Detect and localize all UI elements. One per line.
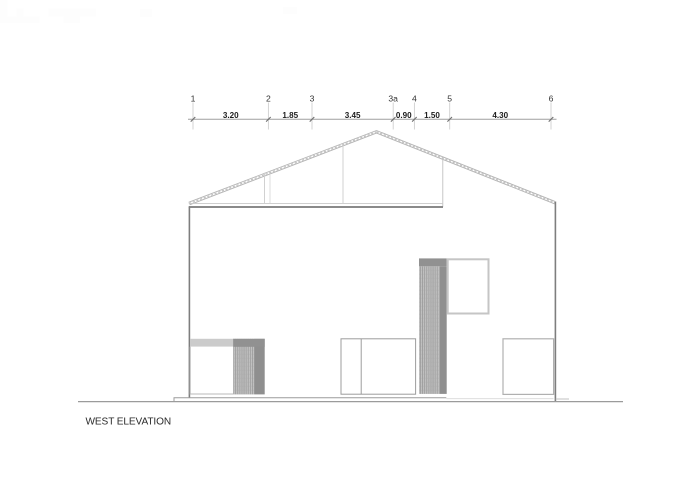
svg-text:3.45: 3.45: [345, 111, 361, 120]
svg-text:6: 6: [549, 93, 554, 103]
svg-text:WEST ELEVATION: WEST ELEVATION: [86, 417, 172, 428]
svg-text:3.20: 3.20: [223, 111, 239, 120]
svg-text:5: 5: [447, 93, 452, 103]
svg-text:0.90: 0.90: [396, 111, 412, 120]
svg-text:1.85: 1.85: [282, 111, 298, 120]
svg-text:2: 2: [266, 93, 271, 103]
svg-text:4: 4: [412, 93, 417, 103]
svg-text:1: 1: [191, 93, 196, 103]
svg-text:3a: 3a: [388, 93, 398, 103]
svg-text:3: 3: [310, 93, 315, 103]
svg-text:1.50: 1.50: [424, 111, 440, 120]
svg-text:4.30: 4.30: [492, 111, 508, 120]
